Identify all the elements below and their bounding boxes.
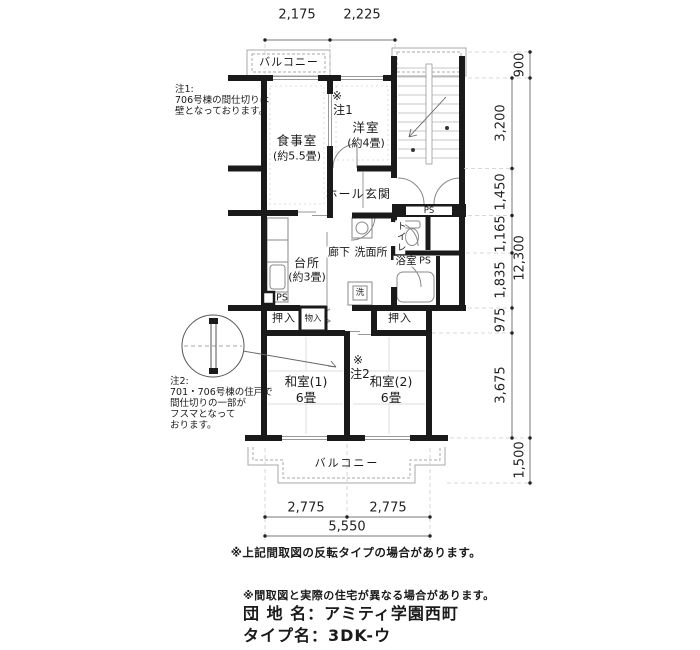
note1-line2: 706号棟の間仕切りは [175,95,269,106]
dim-bottom-total: 5,550 [328,521,365,534]
dim-top-left: 2,175 [278,9,315,22]
note1-line1: 注1: [175,84,269,95]
floor-plan-page: 2,175 2,225 2,775 2,775 5,550 900 3,200 … [0,0,700,650]
flip-note: ※上記間取図の反転タイプの場合があります。 [231,547,482,559]
note2-block: 注2: 701・706号棟の住戸で 間仕切りの一部が フスマとなって おります。 [170,376,273,431]
room-label-washroom: 洗面所 [353,247,390,258]
room-label-western: 洋室 [352,122,379,135]
dim-right-3675: 3,675 [495,366,508,403]
note1-block: 注1: 706号棟の間仕切りは 壁となっております。 [175,84,269,117]
room-label-bath: 浴室 [394,256,419,267]
differ-note: ※間取図と実際の住宅が異なる場合があります。 [243,590,495,601]
room-label-storage: 物入 [304,315,321,324]
room-label-dining-size: (約5.5畳) [273,151,321,162]
note2-mark: ※ [353,354,363,366]
type-name: タイプ名：3DK-ウ [243,628,391,644]
dim-right-1165: 1,165 [495,215,508,252]
room-label-toilet: トイレ [395,220,405,254]
room-label-closet-right: 押入 [388,313,412,324]
room-label-dining: 食事室 [277,135,318,148]
dim-right-900: 900 [514,53,527,78]
room-label-kitchen-size: (約3畳) [288,272,326,283]
dim-top-right: 2,225 [343,9,380,22]
estate-name: 団 地 名：アミティ学園西町 [243,606,459,622]
dim-bottom-left: 2,775 [287,502,324,515]
note2-line1: 注2: [170,376,273,387]
dim-right-1500: 1,500 [514,441,527,478]
note1-line3: 壁となっております。 [175,106,269,117]
dim-right-3200: 3,200 [495,104,508,141]
note2-line4: フスマとなって [170,409,273,420]
note1-ref: 注1 [333,104,353,116]
note2-line5: おります。 [170,420,273,431]
room-label-kitchen: 台所 [294,257,320,269]
room-label-balcony-bottom: バルコニー [315,458,380,469]
note2-line2: 701・706号棟の住戸で [170,387,273,398]
ps-label-bath: PS [419,256,431,266]
room-label-japanese1-size: 6畳 [296,392,316,405]
note2-line3: 間仕切りの一部が [170,398,273,409]
dim-right-975: 975 [495,308,508,333]
note1-mark: ※ [332,90,342,102]
dim-bottom-right: 2,775 [369,502,406,515]
dim-right-1450: 1,450 [495,173,508,210]
room-label-entrance: 玄関 [365,188,391,200]
room-label-japanese2-size: 6畳 [381,392,401,405]
room-label-japanese1: 和室(1) [285,376,328,389]
room-label-western-size: (約4畳) [347,138,385,149]
ps-label-entrance: PS [424,207,435,216]
washer-label: 洗 [356,289,365,298]
stairs [398,64,459,164]
room-label-hall: ホール [325,188,364,200]
room-label-japanese2: 和室(2) [370,376,413,389]
ps-label-kitchen: PS [276,293,288,303]
dim-right-total: 12,300 [514,235,527,281]
room-label-corridor: 廊下 [326,247,352,258]
note2-ref: 注2 [350,368,370,380]
room-label-balcony-top: バルコニー [257,57,321,68]
room-label-closet-left: 押入 [272,313,296,324]
dim-right-1835: 1,835 [495,261,508,298]
